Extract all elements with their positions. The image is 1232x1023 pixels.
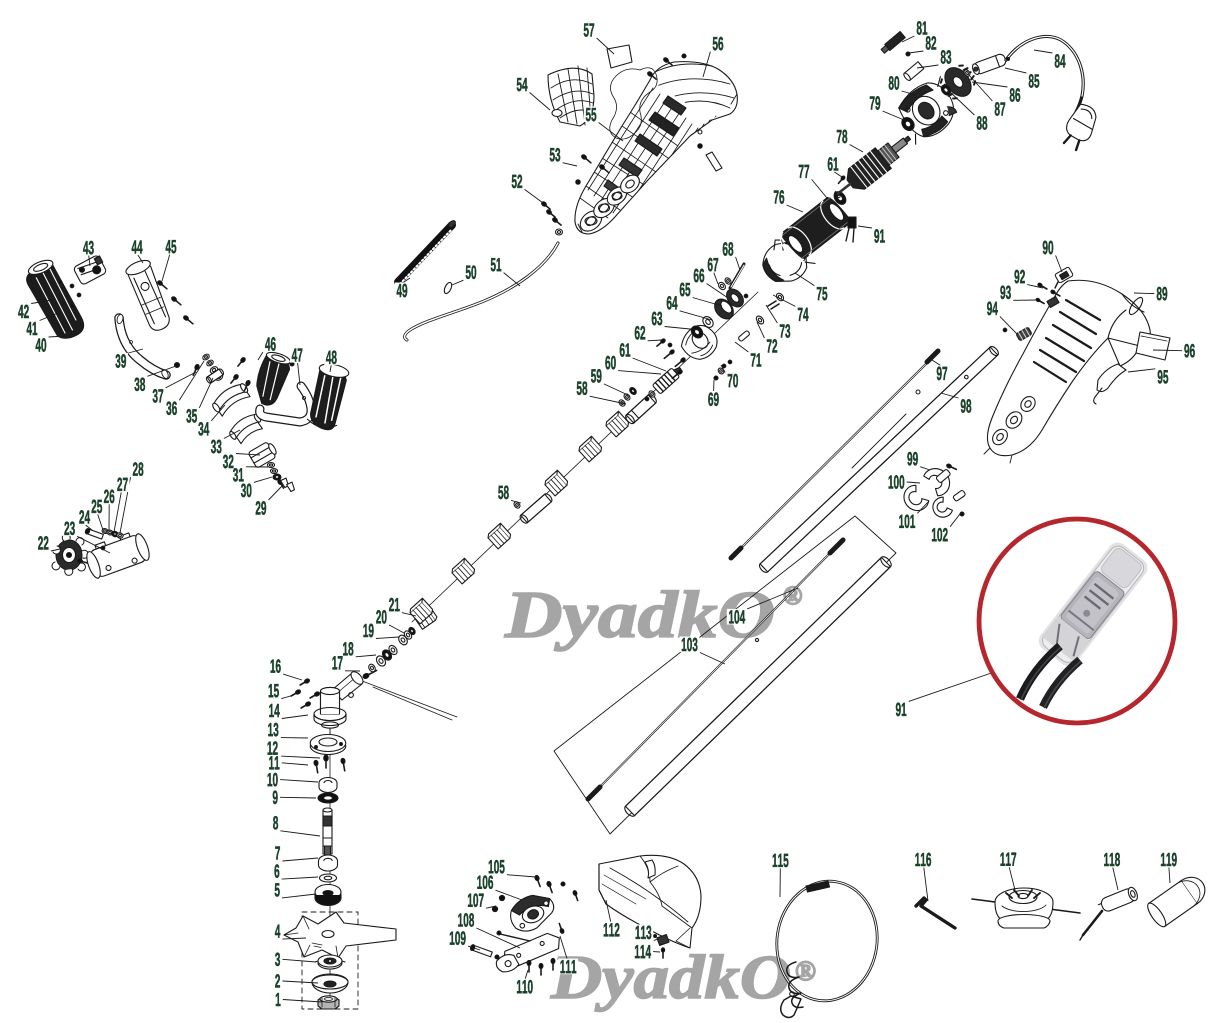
svg-text:®: ® — [795, 956, 816, 987]
svg-text:DyadkO: DyadkO — [550, 944, 791, 1012]
